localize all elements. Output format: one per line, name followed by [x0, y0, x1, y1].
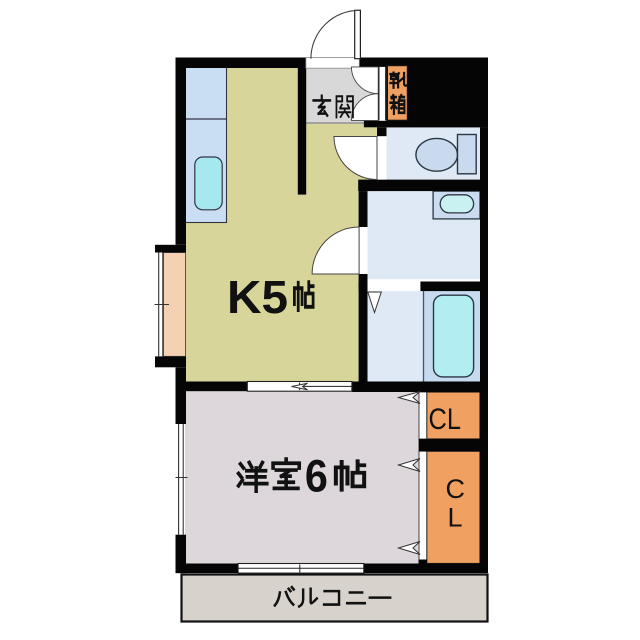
svg-text:L: L: [448, 503, 463, 533]
svg-text:CL: CL: [429, 403, 462, 436]
svg-text:6: 6: [305, 451, 328, 502]
svg-text:K5: K5: [227, 271, 288, 323]
svg-text:C: C: [446, 474, 466, 504]
